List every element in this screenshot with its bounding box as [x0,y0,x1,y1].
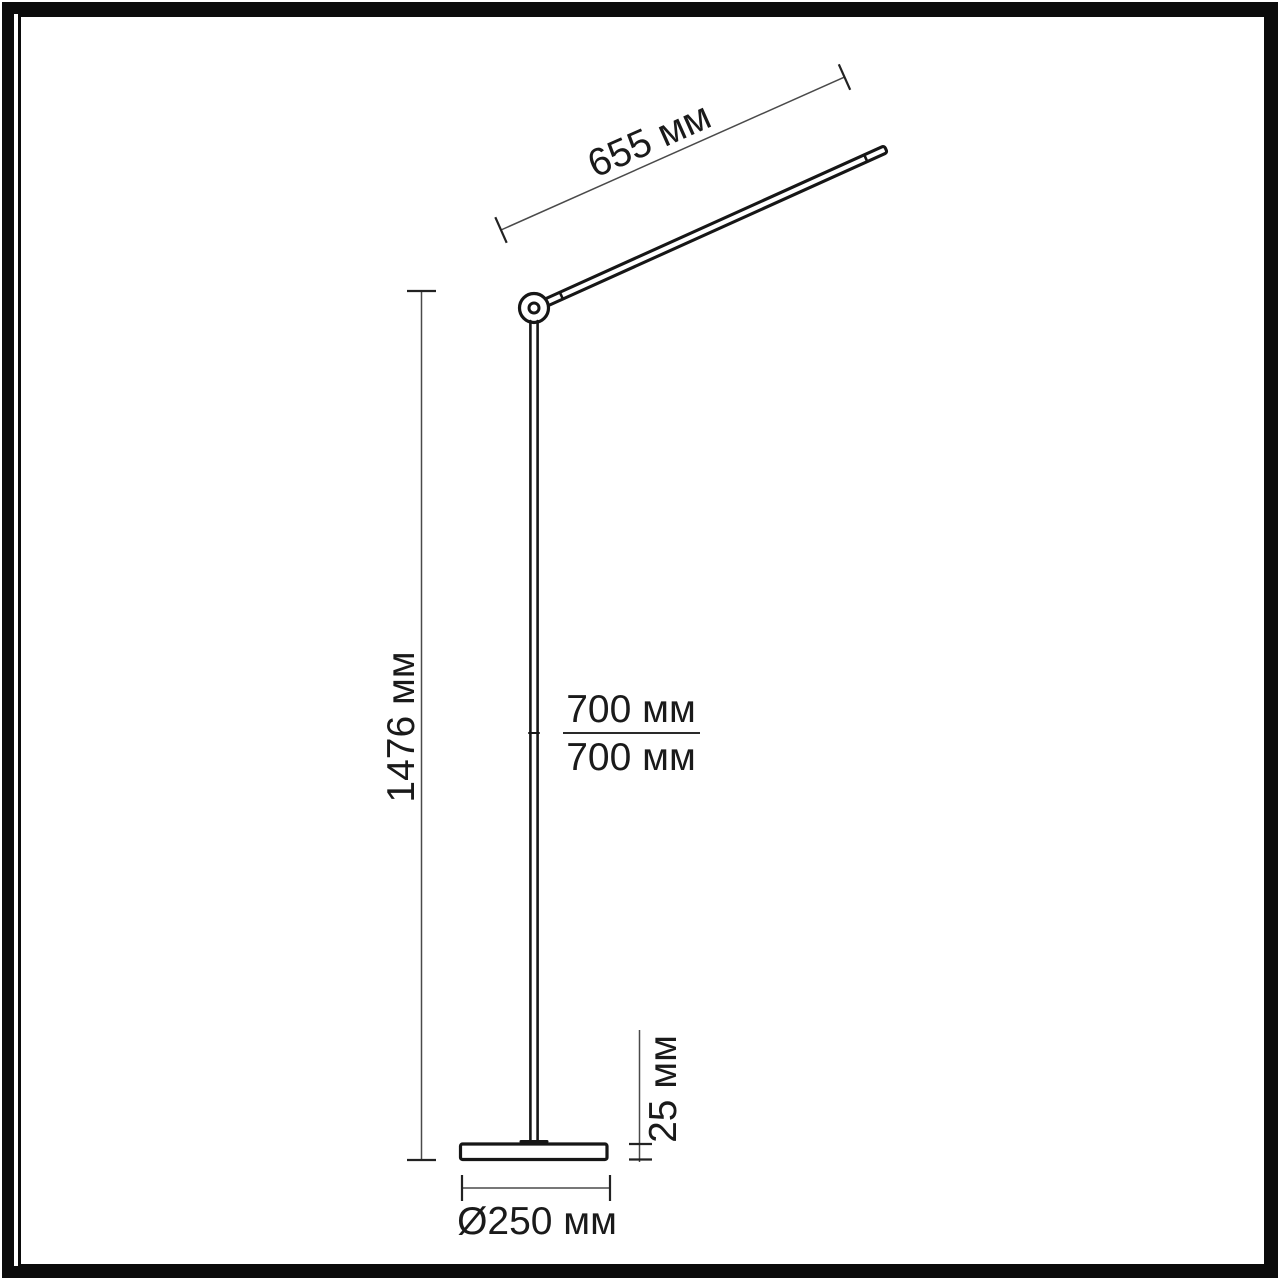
dim-base-thickness: 25 мм [629,1030,685,1162]
lamp-base [461,1144,608,1160]
dim-pole-segments: 700 мм 700 мм [563,688,700,779]
pivot-joint-axle [529,303,539,313]
dim-base-thickness-label: 25 мм [642,1035,685,1143]
dim-arm-length-line [501,77,844,230]
dim-upper-segment-label: 700 мм [566,688,696,731]
dim-base-diameter: Ø250 мм [457,1175,617,1243]
dim-base-diameter-label: Ø250 мм [457,1200,617,1243]
dim-total-height-label: 1476 мм [380,651,423,802]
diagram-page: 655 мм 1476 мм 700 мм 700 мм 25 мм Ø [0,0,1280,1280]
dim-lower-segment-label: 700 мм [566,736,696,779]
dim-arm-length: 655 мм [484,38,851,243]
dim-arm-length-tick-end [839,64,850,90]
lamp-pole [521,321,547,1144]
dim-arm-length-label: 655 мм [581,94,717,186]
dim-total-height: 1476 мм [380,291,436,1160]
dim-arm-length-tick-start [495,217,506,243]
lamp-dimension-drawing: 655 мм 1476 мм 700 мм 700 мм 25 мм Ø [0,0,1280,1280]
